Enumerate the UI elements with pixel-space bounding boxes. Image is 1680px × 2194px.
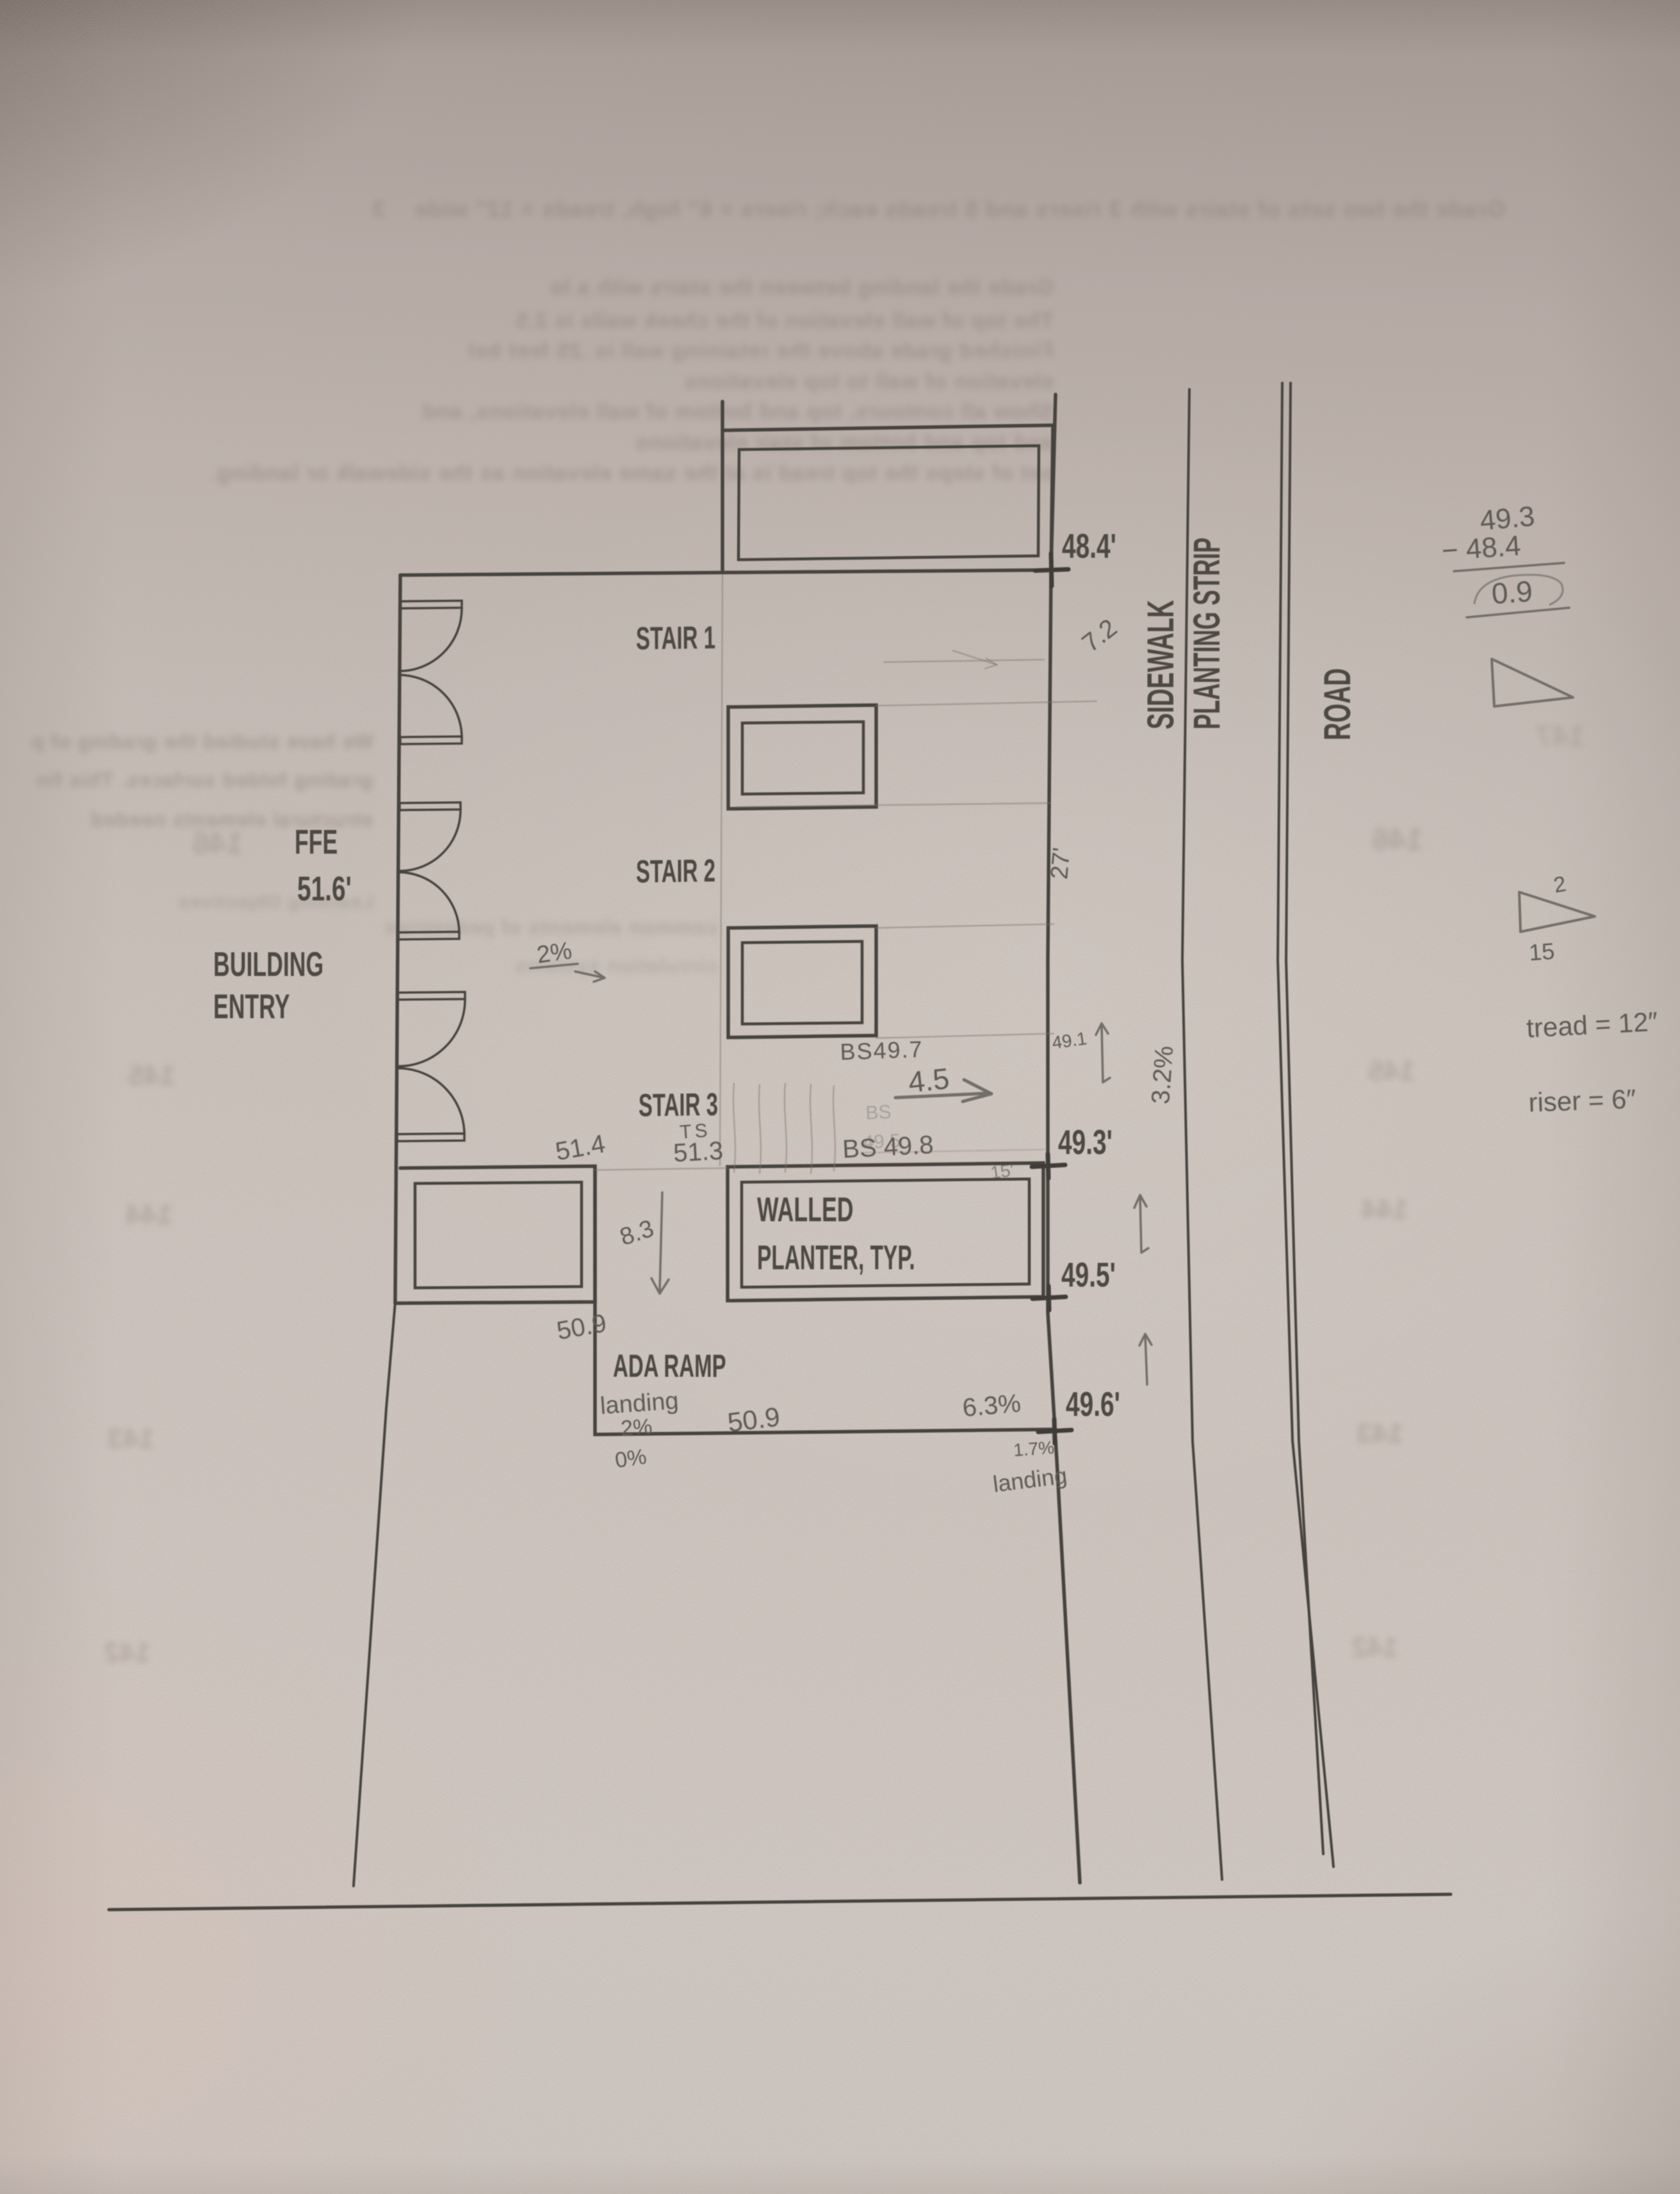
svg-text:ROAD: ROAD — [1317, 668, 1358, 740]
svg-text:STAIR 2: STAIR 2 — [636, 853, 715, 890]
svg-text:2: 2 — [1552, 872, 1568, 898]
svg-text:51.4: 51.4 — [553, 1130, 607, 1166]
svg-text:ADA RAMP: ADA RAMP — [613, 1348, 726, 1383]
svg-text:BS49.7: BS49.7 — [840, 1036, 924, 1065]
svg-text:50.9: 50.9 — [555, 1309, 608, 1345]
svg-text:ENTRY: ENTRY — [213, 987, 290, 1026]
svg-text:49.5: 49.5 — [863, 1130, 901, 1153]
svg-text:49.5': 49.5' — [1061, 1255, 1116, 1294]
svg-text:STAIR 3: STAIR 3 — [639, 1087, 718, 1123]
svg-text:3.2%: 3.2% — [1146, 1045, 1178, 1105]
svg-text:2%: 2% — [620, 1415, 653, 1441]
svg-text:tread = 12″: tread = 12″ — [1526, 1006, 1658, 1043]
svg-text:0%: 0% — [614, 1444, 648, 1472]
svg-text:49.3': 49.3' — [1058, 1123, 1113, 1162]
svg-text:7.2: 7.2 — [1077, 614, 1122, 658]
svg-text:STAIR 1: STAIR 1 — [636, 620, 715, 656]
svg-text:8.3: 8.3 — [617, 1215, 657, 1251]
svg-text:15': 15' — [990, 1160, 1015, 1183]
svg-text:SIDEWALK: SIDEWALK — [1141, 600, 1182, 729]
svg-text:51.6': 51.6' — [297, 869, 352, 908]
svg-text:50.9: 50.9 — [726, 1401, 781, 1438]
svg-text:WALLED: WALLED — [757, 1190, 853, 1229]
svg-text:6.3%: 6.3% — [961, 1389, 1022, 1422]
svg-text:1.7%: 1.7% — [1013, 1438, 1055, 1460]
svg-text:BS: BS — [865, 1101, 892, 1124]
svg-text:15: 15 — [1528, 938, 1556, 966]
svg-text:2%: 2% — [535, 938, 573, 969]
svg-text:− 48.4: − 48.4 — [1440, 530, 1522, 566]
svg-text:49.1: 49.1 — [1051, 1028, 1088, 1053]
svg-text:49.6': 49.6' — [1066, 1385, 1120, 1424]
svg-text:BUILDING: BUILDING — [213, 945, 323, 984]
svg-text:0.9: 0.9 — [1490, 574, 1533, 610]
svg-text:PLANTER, TYP.: PLANTER, TYP. — [757, 1238, 915, 1277]
svg-text:48.4': 48.4' — [1062, 526, 1116, 565]
svg-text:4.5: 4.5 — [907, 1062, 951, 1099]
svg-text:riser = 6″: riser = 6″ — [1528, 1084, 1636, 1117]
svg-text:51.3: 51.3 — [673, 1137, 724, 1167]
svg-text:27': 27' — [1046, 847, 1075, 881]
svg-text:PLANTING STRIP: PLANTING STRIP — [1186, 537, 1228, 729]
svg-text:FFE: FFE — [295, 823, 338, 861]
